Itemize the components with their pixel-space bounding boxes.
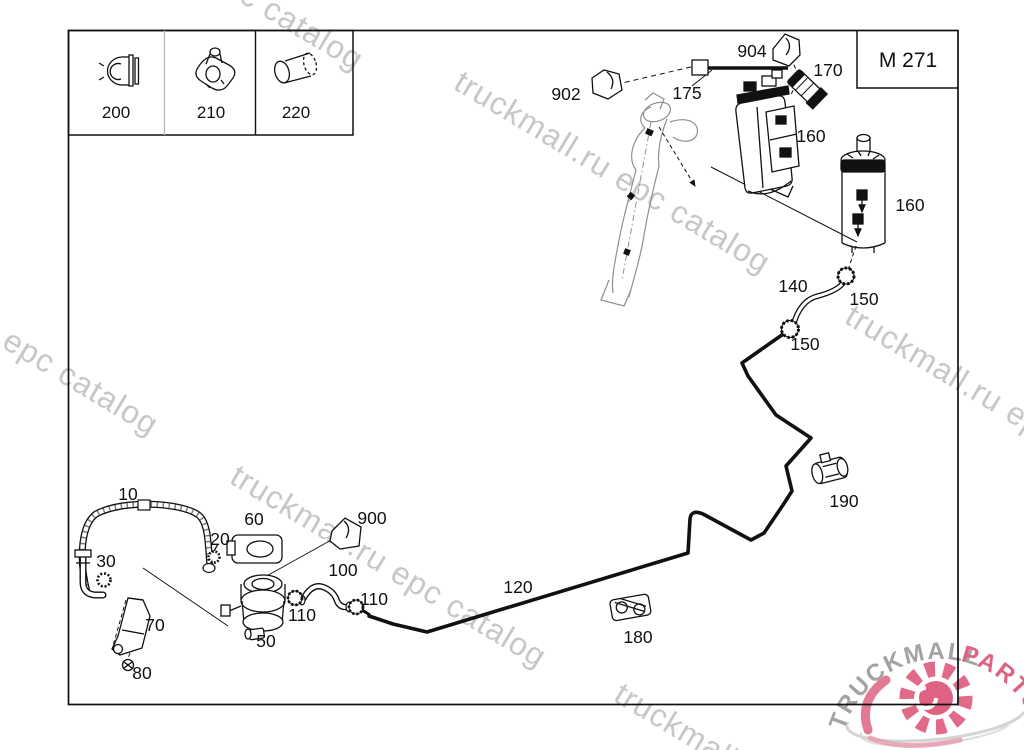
callout-904[interactable]: 904 <box>737 41 766 61</box>
sleeve-icon <box>272 52 319 85</box>
callout-30[interactable]: 30 <box>96 551 116 571</box>
parts-diagram-page: truckmall.ru epc catalog truckmall.ru ep… <box>0 0 1024 750</box>
callout-170[interactable]: 170 <box>813 60 842 80</box>
watermark-text: truckmall.ru epc catalog <box>41 0 370 77</box>
callout-190[interactable]: 190 <box>829 491 858 511</box>
callout-10[interactable]: 10 <box>118 484 138 504</box>
watermark-text: truckmall.ru epc catalog <box>839 297 1024 514</box>
callout-20[interactable]: 20 <box>210 529 230 549</box>
callout-150-upper[interactable]: 150 <box>849 289 878 309</box>
legend-item-200[interactable]: 200 <box>99 55 139 122</box>
callout-60[interactable]: 60 <box>244 509 264 529</box>
callout-902[interactable]: 902 <box>551 84 580 104</box>
hose-clamp-left[interactable] <box>288 591 302 605</box>
legend-label: 210 <box>197 103 225 122</box>
callout-175[interactable]: 175 <box>672 83 701 103</box>
legend-label: 200 <box>102 103 130 122</box>
watermark-text: truckmall.ru epc catalog <box>608 675 937 750</box>
diagram-code: M 271 <box>879 49 937 72</box>
callout-labels: 10 20 30 50 60 70 80 100 110 110 120 140… <box>96 41 925 683</box>
callout-70[interactable]: 70 <box>145 615 165 635</box>
callout-900[interactable]: 900 <box>357 508 386 528</box>
callout-110-right[interactable]: 110 <box>360 589 388 609</box>
fastener-kit-line[interactable] <box>592 70 622 99</box>
fastener-kit-canister[interactable] <box>773 34 800 66</box>
callout-180[interactable]: 180 <box>623 627 652 647</box>
callout-100[interactable]: 100 <box>328 560 357 580</box>
callout-110-left[interactable]: 110 <box>288 605 316 625</box>
line-holder-block[interactable] <box>609 594 651 621</box>
callout-160-left[interactable]: 160 <box>796 126 825 146</box>
watermark-layer: truckmall.ru epc catalog truckmall.ru ep… <box>0 0 1024 750</box>
legend-label: 220 <box>282 103 310 122</box>
watermark-text: truckmall.ru epc catalog <box>0 225 165 442</box>
pipe-clamp-icon <box>99 55 139 86</box>
callout-80[interactable]: 80 <box>132 663 152 683</box>
truckmall-logo: TRUCKMALL PARTS <box>824 638 1024 746</box>
line-clip[interactable] <box>808 449 850 485</box>
line-clip-icon <box>196 48 235 90</box>
callout-120[interactable]: 120 <box>503 577 532 597</box>
clamp-upper[interactable] <box>838 268 854 284</box>
legend-item-210[interactable]: 210 <box>196 48 235 122</box>
charcoal-canister-assembled[interactable] <box>736 70 799 197</box>
diagram-canvas: truckmall.ru epc catalog truckmall.ru ep… <box>0 0 1024 750</box>
valve-bracket[interactable] <box>227 535 282 563</box>
legend-item-220[interactable]: 220 <box>272 52 319 122</box>
charcoal-canister[interactable] <box>841 135 885 254</box>
callout-150-lower[interactable]: 150 <box>790 334 819 354</box>
callout-50[interactable]: 50 <box>256 631 276 651</box>
callout-160-right[interactable]: 160 <box>895 195 924 215</box>
callout-140[interactable]: 140 <box>778 276 807 296</box>
